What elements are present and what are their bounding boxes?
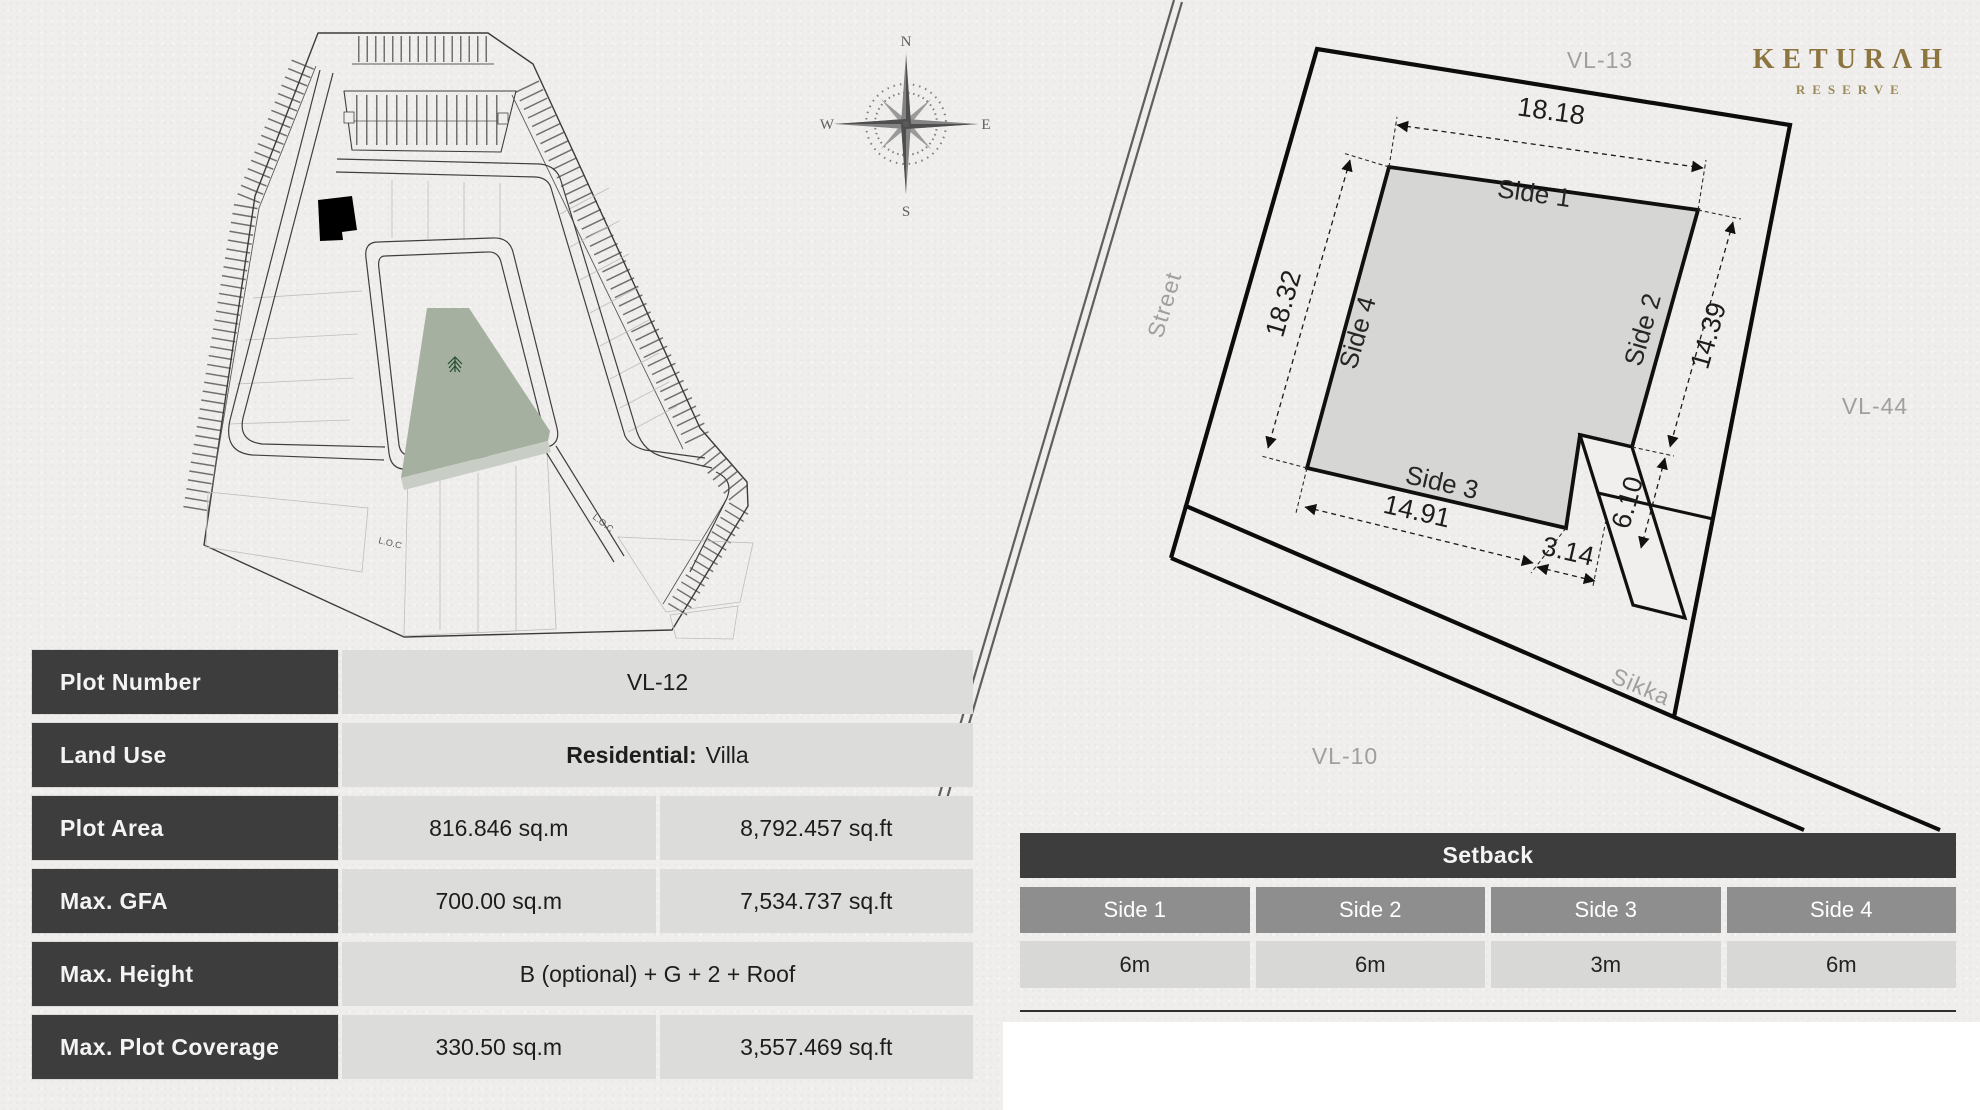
setback-col-side1: Side 1 [1020, 887, 1250, 933]
dim-line-side1 [1397, 125, 1703, 168]
hatch-strip-right-bend [706, 452, 742, 497]
row-value: VL-12 [342, 650, 973, 714]
keturah-reserve-logo: KETURΛH RESERVE [1753, 44, 1942, 98]
row-label: Plot Area [32, 796, 338, 860]
strip-edge [207, 66, 316, 518]
neighbor-block [618, 537, 753, 612]
road [556, 446, 624, 556]
divider-rule [1020, 1010, 1956, 1012]
road [546, 452, 614, 562]
row-label: Plot Number [32, 650, 338, 714]
hatch-strip-left [194, 64, 303, 516]
loc-label: L.O.C [378, 535, 404, 551]
strip-edge [512, 95, 683, 449]
setback-col-side4: Side 4 [1727, 887, 1957, 933]
extension-line [1593, 520, 1606, 586]
value-sqm: 700.00 sq.m [342, 869, 656, 933]
setback-value-side2: 6m [1256, 941, 1486, 988]
row-label: Land Use [32, 723, 338, 787]
table-row-max-gfa: Max. GFA 700.00 sq.m 7,534.737 sq.ft [32, 869, 973, 933]
extension-line [1389, 117, 1397, 167]
value-sqft: 7,534.737 sq.ft [660, 869, 974, 933]
setback-title: Setback [1020, 833, 1956, 878]
value-sqm: 816.846 sq.m [342, 796, 656, 860]
compass-e: E [981, 117, 990, 133]
parcel-line [229, 420, 350, 424]
compass-n: N [901, 34, 912, 50]
neighbor-label-vl10: VL-10 [1312, 743, 1378, 769]
neighbor-label-vl13: VL-13 [1567, 47, 1633, 73]
setback-value-side3: 3m [1491, 941, 1721, 988]
setback-table: Setback Side 1 Side 2 Side 3 Side 4 6m 6… [1020, 833, 1956, 988]
table-row-max-height: Max. Height B (optional) + G + 2 + Roof [32, 942, 973, 1006]
road [242, 73, 385, 447]
hatch-strip-lower-right [676, 508, 739, 612]
table-row-plot-number: Plot Number VL-12 [32, 650, 973, 714]
road [229, 70, 384, 460]
land-use-type: Villa [706, 742, 749, 769]
compass-s: S [902, 204, 910, 220]
dim-side2: 14.39 [1685, 299, 1732, 372]
site-master-plan: L.O.C L.O.C [150, 0, 800, 650]
land-use-category: Residential: [566, 742, 696, 769]
value-sqft: 3,557.469 sq.ft [660, 1015, 974, 1079]
dim-side4: 18.32 [1260, 267, 1307, 340]
extension-line [1261, 456, 1307, 468]
row-label: Max. Height [32, 942, 338, 1006]
compass-w: W [820, 117, 835, 133]
dim-notch-width: 3.14 [1539, 531, 1597, 572]
setback-col-side2: Side 2 [1256, 887, 1486, 933]
extension-line [1698, 210, 1741, 219]
boundary-extension [1171, 506, 1186, 558]
table-row-land-use: Land Use Residential: Villa [32, 723, 973, 787]
sikka-line [1171, 558, 1804, 830]
parcel-line [237, 378, 354, 384]
building-footprint [318, 196, 357, 241]
strip-edge [663, 500, 726, 604]
map-detail [344, 112, 354, 123]
extension-line [1632, 447, 1674, 456]
extension-line [1296, 468, 1307, 513]
logo-subtitle-text: RESERVE [1753, 82, 1949, 98]
row-value: Residential: Villa [342, 723, 973, 787]
table-row-max-plot-coverage: Max. Plot Coverage 330.50 sq.m 3,557.469… [32, 1015, 973, 1079]
setback-col-side3: Side 3 [1491, 887, 1721, 933]
neighbor-label-vl44: VL-44 [1842, 393, 1908, 419]
neighbor-block [206, 492, 368, 572]
plot-info-table: Plot Number VL-12 Land Use Residential: … [32, 650, 973, 1079]
setback-value-side4: 6m [1727, 941, 1957, 988]
street-label: Street [1142, 269, 1187, 341]
inner-block-outline [344, 91, 516, 152]
row-value: B (optional) + G + 2 + Roof [342, 942, 973, 1006]
sikka-line [1674, 717, 1940, 830]
compass-rose: N E S W [818, 32, 994, 222]
setback-value-side1: 6m [1020, 941, 1250, 988]
parcel-line [245, 334, 358, 340]
parcel-line [253, 291, 362, 298]
footer-blank-area [1003, 1022, 1980, 1110]
row-label: Max. GFA [32, 869, 338, 933]
map-detail [498, 113, 508, 124]
logo-brand-text: KETURΛH [1753, 44, 1950, 76]
value-sqft: 8,792.457 sq.ft [660, 796, 974, 860]
row-label: Max. Plot Coverage [32, 1015, 338, 1079]
road [690, 472, 729, 572]
table-row-plot-area: Plot Area 816.846 sq.m 8,792.457 sq.ft [32, 796, 973, 860]
value-sqm: 330.50 sq.m [342, 1015, 656, 1079]
dim-side1: 18.18 [1516, 92, 1587, 131]
compass-star [834, 54, 978, 194]
